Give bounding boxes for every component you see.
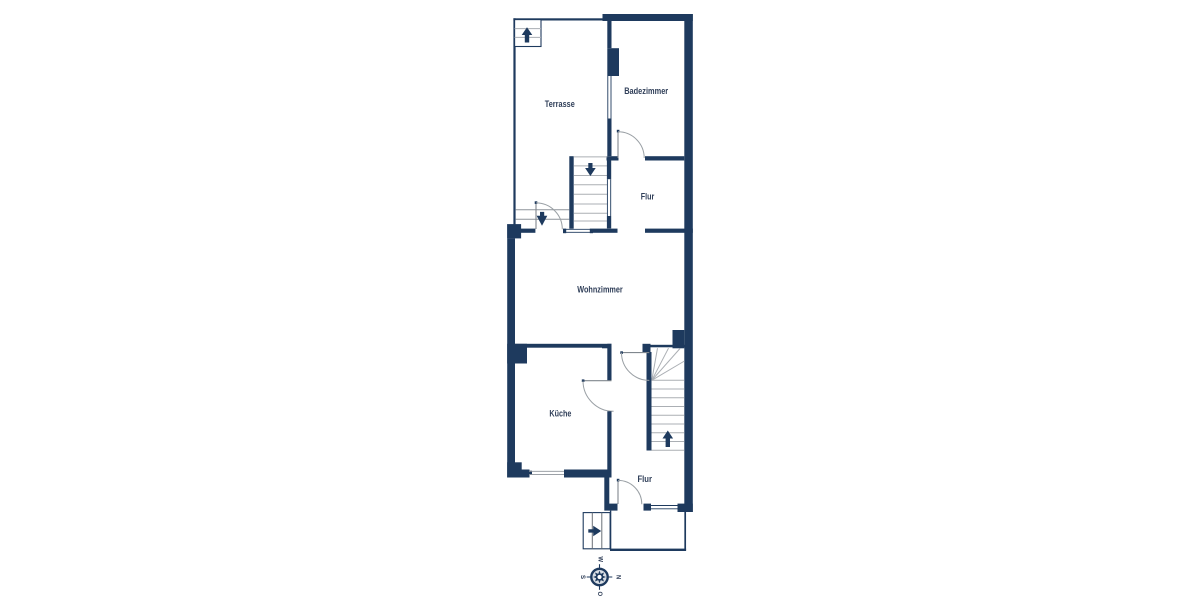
svg-text:O: O (596, 592, 602, 597)
svg-text:Flur: Flur (641, 191, 655, 201)
svg-text:Badezimmer: Badezimmer (624, 86, 668, 96)
svg-text:Flur: Flur (637, 474, 652, 484)
svg-text:N: N (614, 575, 620, 579)
svg-text:Wohnzimmer: Wohnzimmer (577, 285, 623, 295)
svg-text:Terrasse: Terrasse (545, 99, 575, 109)
svg-text:Küche: Küche (549, 409, 571, 419)
svg-text:S: S (579, 575, 585, 579)
svg-text:W: W (596, 556, 602, 562)
